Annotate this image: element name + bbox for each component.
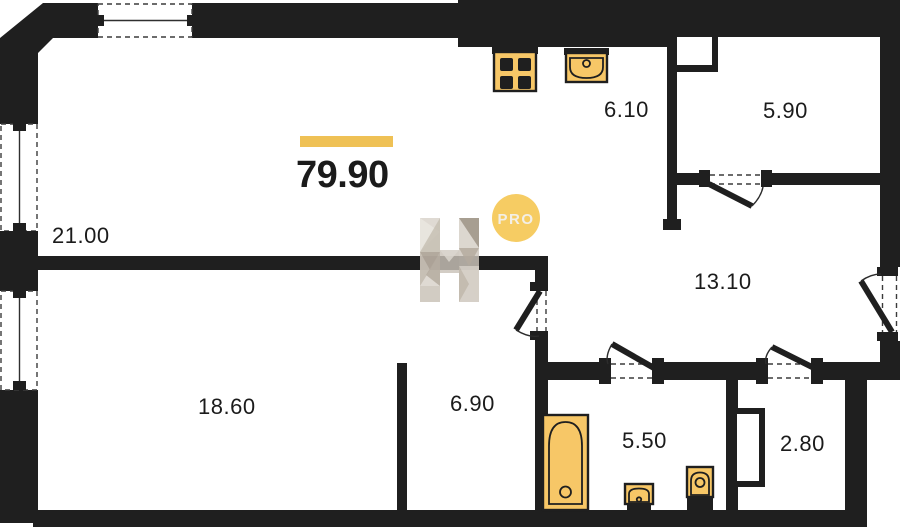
room-label-living: 21.00 bbox=[52, 223, 110, 248]
wall-left-lower bbox=[0, 390, 38, 523]
toilet-icon bbox=[687, 467, 713, 510]
wall-kitchen-divider bbox=[667, 37, 677, 230]
door-wc bbox=[756, 347, 823, 384]
door-bedroom bbox=[516, 282, 548, 340]
room-label-bedroom: 18.60 bbox=[198, 394, 256, 419]
shaft-wc bbox=[734, 411, 762, 484]
watermark-h-logo bbox=[420, 218, 479, 302]
pro-badge: PRO bbox=[492, 194, 540, 242]
bathtub-icon bbox=[543, 415, 588, 510]
wall-top-a bbox=[192, 3, 458, 38]
door-pantry bbox=[699, 170, 772, 206]
total-area-underline bbox=[300, 136, 393, 147]
wall-hall-bottom-a bbox=[545, 362, 607, 380]
door-balcony bbox=[861, 267, 898, 341]
stove-icon bbox=[492, 47, 538, 91]
wall-hall-bottom-b bbox=[657, 362, 763, 380]
bathroom-sink-icon bbox=[625, 484, 653, 512]
wall-right-step bbox=[845, 380, 867, 510]
door-bathroom bbox=[599, 344, 664, 384]
wall-left-sill-1 bbox=[0, 110, 38, 124]
total-area-label: 79.90 bbox=[296, 154, 389, 196]
wall-kitchen-divider-cap bbox=[663, 219, 681, 230]
wall-pantry-bottom-right bbox=[765, 173, 900, 185]
total-area: 79.90 bbox=[296, 136, 393, 196]
window-top bbox=[94, 4, 197, 37]
room-label-wc: 2.80 bbox=[780, 431, 825, 456]
wall-top-c bbox=[667, 0, 900, 37]
wall-bottom bbox=[33, 510, 867, 527]
shaft-pantry-bottom bbox=[677, 65, 718, 72]
wall-hall-bottom-c bbox=[817, 362, 900, 380]
pro-badge-label: PRO bbox=[497, 211, 534, 228]
room-label-kitchen: 6.10 bbox=[604, 97, 649, 122]
wall-right-upper bbox=[880, 37, 900, 267]
wall-top-b bbox=[458, 0, 667, 47]
wall-alcove-partition bbox=[397, 363, 407, 512]
room-label-bathroom: 5.50 bbox=[622, 428, 667, 453]
room-label-hall: 13.10 bbox=[694, 269, 752, 294]
window-left-lower bbox=[0, 279, 38, 390]
window-left-upper bbox=[0, 122, 38, 243]
room-label-pantry: 5.90 bbox=[763, 98, 808, 123]
wall-top-left-chamfer bbox=[0, 3, 98, 122]
kitchen-sink-icon bbox=[564, 48, 609, 82]
room-label-alcove: 6.90 bbox=[450, 391, 495, 416]
floor-plan: PRO 79.90 21.00 6.10 5.90 13.10 18.60 6.… bbox=[0, 0, 900, 527]
